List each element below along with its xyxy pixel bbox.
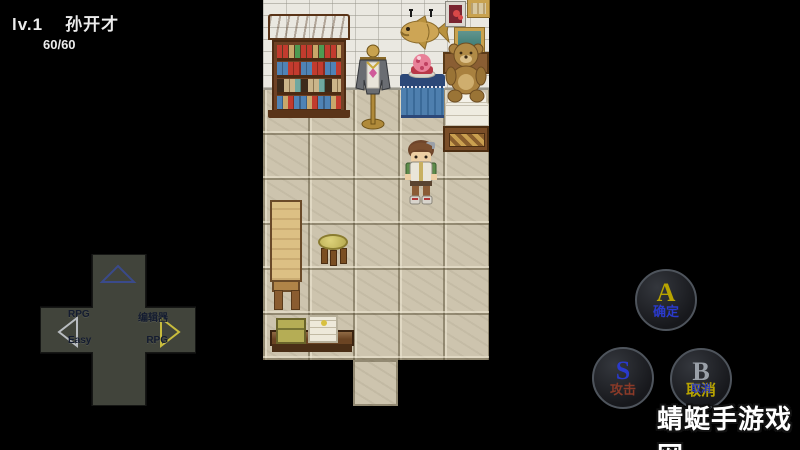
bookshelf-cornice bbox=[268, 14, 350, 40]
bed-footboard bbox=[443, 126, 489, 152]
dpad-text-editor: 编辑器 bbox=[138, 309, 168, 324]
papers bbox=[308, 315, 338, 343]
dpad-down-icon[interactable] bbox=[162, 375, 202, 397]
books-row bbox=[277, 62, 341, 78]
coat-stand bbox=[353, 42, 393, 130]
site-watermark: 蜻蜓手游戏网 bbox=[657, 399, 800, 450]
dpad-text-rpg2: RPG bbox=[146, 335, 168, 346]
hud: lv.1孙开才 60/60 bbox=[12, 10, 119, 52]
button-a[interactable]: A 确定 bbox=[635, 269, 697, 331]
coat-stand-icon bbox=[353, 42, 393, 130]
dpad-up-icon[interactable] bbox=[98, 263, 138, 285]
stool-leg bbox=[340, 248, 347, 264]
stool-leg bbox=[321, 248, 328, 264]
game-screen: lv.1孙开才 60/60 bbox=[0, 0, 800, 450]
character-name: 孙开才 bbox=[65, 15, 119, 34]
treasure-box bbox=[276, 318, 306, 344]
long-table bbox=[270, 200, 302, 310]
button-s[interactable]: S 攻击 bbox=[592, 347, 654, 409]
cake-icon bbox=[407, 52, 437, 78]
long-table-top bbox=[270, 200, 302, 282]
flower-art-icon bbox=[453, 10, 460, 17]
blue-table bbox=[400, 58, 445, 120]
stool-leg bbox=[330, 250, 337, 266]
dpad-watermark-line2: Easy RPG bbox=[68, 335, 168, 346]
picture-frame-flower bbox=[446, 2, 465, 26]
bookshelf-base bbox=[268, 110, 350, 118]
button-a-letter: A bbox=[657, 282, 676, 304]
table-leg bbox=[274, 290, 283, 310]
level-label: lv.1 bbox=[12, 15, 43, 34]
button-s-letter: S bbox=[616, 360, 630, 382]
dpad-text-rpg: RPG bbox=[68, 309, 90, 324]
hero-sprite-icon bbox=[402, 138, 440, 206]
teddy-bear-icon bbox=[443, 40, 489, 106]
bookshelf bbox=[268, 14, 350, 118]
dpad-text-easy: Easy bbox=[68, 335, 91, 346]
button-s-label: 攻击 bbox=[610, 383, 636, 396]
hero-character bbox=[402, 138, 440, 206]
dpad-watermark-line1: RPG 编辑器 bbox=[68, 309, 168, 324]
desk-front bbox=[272, 344, 352, 352]
blue-table-cloth bbox=[401, 88, 444, 118]
game-viewport bbox=[263, 0, 489, 406]
dpad[interactable]: RPG 编辑器 Easy RPG bbox=[40, 254, 196, 406]
hp-value: 60/60 bbox=[43, 37, 119, 52]
picture-frame-tan bbox=[468, 0, 489, 17]
stool-top bbox=[318, 234, 348, 250]
bed bbox=[443, 40, 489, 155]
bed-footboard-pattern bbox=[449, 133, 485, 147]
bookshelf-body bbox=[272, 40, 346, 112]
books-row bbox=[277, 79, 341, 95]
paper-flower-icon bbox=[321, 320, 327, 326]
table-leg bbox=[291, 290, 300, 310]
hud-line: lv.1孙开才 bbox=[12, 10, 119, 35]
button-a-label: 确定 bbox=[653, 305, 679, 318]
low-desk bbox=[270, 316, 354, 360]
button-b-label-shadow: 取消 bbox=[691, 380, 711, 395]
stool bbox=[318, 232, 348, 262]
books-row bbox=[277, 45, 341, 61]
exit-tile bbox=[353, 360, 398, 406]
